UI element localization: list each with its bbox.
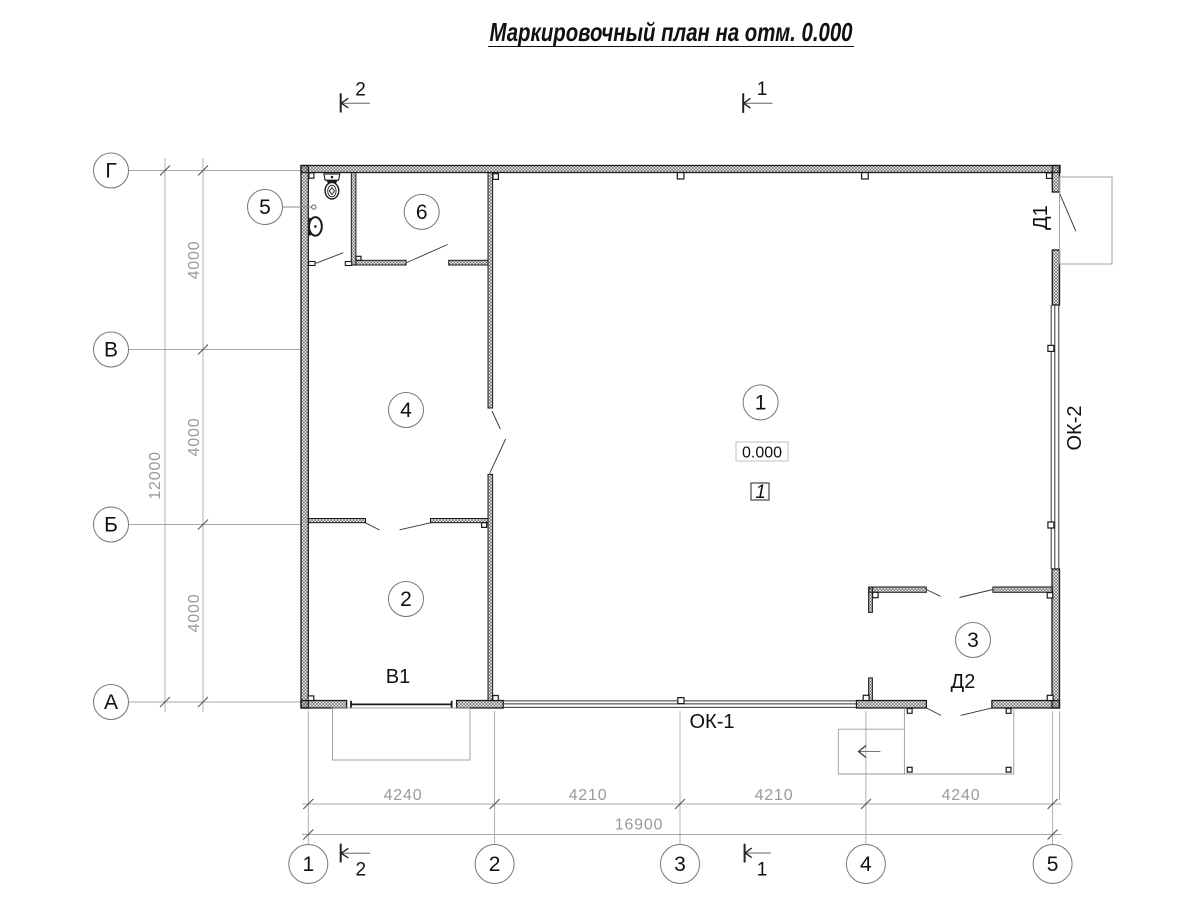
svg-text:2: 2: [489, 853, 501, 876]
svg-text:5: 5: [1047, 853, 1059, 876]
svg-text:12000: 12000: [147, 451, 164, 500]
svg-text:Маркировочный план на отм. 0.0: Маркировочный план на отм. 0.000: [490, 17, 853, 47]
svg-text:4240: 4240: [942, 787, 981, 804]
svg-text:Д2: Д2: [951, 671, 976, 693]
svg-text:ОК-2: ОК-2: [1064, 406, 1086, 451]
svg-text:А: А: [104, 691, 118, 714]
svg-text:4000: 4000: [186, 418, 203, 457]
svg-text:1: 1: [757, 79, 768, 100]
svg-text:1: 1: [755, 391, 767, 414]
svg-text:2: 2: [356, 860, 367, 881]
svg-text:Б: Б: [104, 514, 118, 537]
svg-text:3: 3: [674, 853, 686, 876]
svg-text:4210: 4210: [755, 787, 794, 804]
svg-text:2: 2: [355, 80, 366, 101]
svg-text:ОК-1: ОК-1: [690, 711, 735, 733]
svg-text:6: 6: [416, 201, 428, 224]
svg-text:Г: Г: [105, 160, 116, 183]
svg-text:3: 3: [967, 629, 979, 652]
svg-text:4: 4: [400, 399, 412, 422]
svg-text:4210: 4210: [569, 787, 608, 804]
svg-text:В: В: [104, 339, 118, 362]
svg-text:1: 1: [757, 860, 768, 881]
svg-text:4240: 4240: [384, 787, 423, 804]
svg-text:Д1: Д1: [1030, 205, 1052, 230]
svg-text:1: 1: [755, 482, 766, 503]
svg-text:4000: 4000: [186, 594, 203, 633]
svg-text:2: 2: [400, 588, 412, 611]
svg-text:1: 1: [302, 853, 314, 876]
svg-text:В1: В1: [386, 666, 410, 688]
svg-text:16900: 16900: [615, 817, 664, 834]
svg-text:5: 5: [259, 196, 271, 219]
svg-text:0.000: 0.000: [742, 445, 782, 462]
svg-text:4: 4: [860, 853, 872, 876]
svg-text:4000: 4000: [186, 241, 203, 280]
